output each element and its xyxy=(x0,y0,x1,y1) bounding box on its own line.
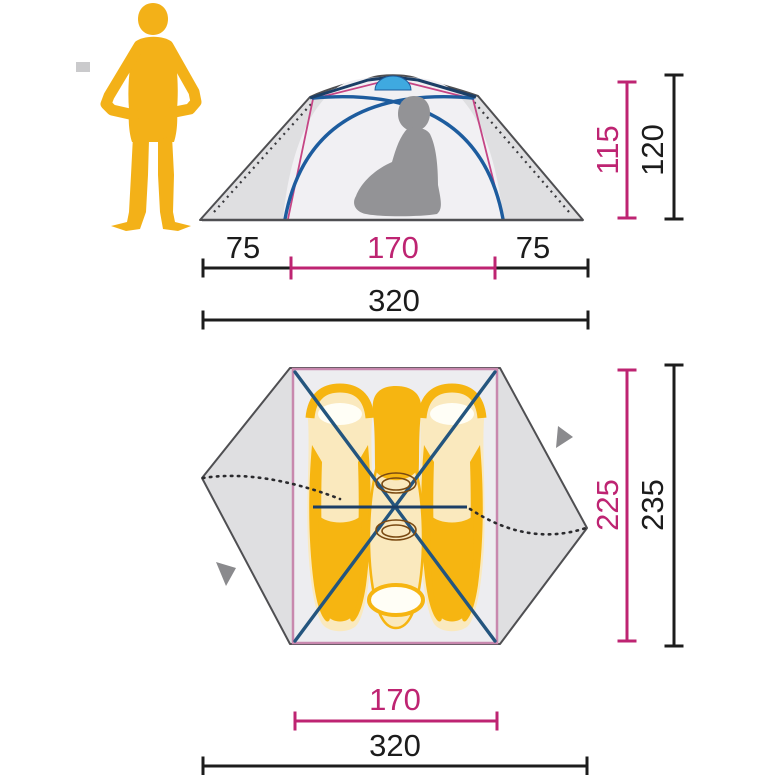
bag-foot xyxy=(318,515,362,622)
dim-right-width-label: 75 xyxy=(516,230,550,265)
tent-dimensions-diagram: 115 120 75 170 75 320 xyxy=(0,0,775,775)
kneeling-person-head xyxy=(398,96,430,131)
entrance-arrow-icon-bottom-left xyxy=(216,562,236,586)
dim-outer-depth-label: 235 xyxy=(635,479,670,531)
dim-left-width-label: 75 xyxy=(226,230,260,265)
tent-floor-plan xyxy=(202,368,587,644)
dim-inner-height-label: 115 xyxy=(590,125,625,174)
plan-depth-dimensions: 225 235 xyxy=(590,365,682,646)
bag-foot-pad xyxy=(369,585,423,615)
front-height-dimensions: 115 120 xyxy=(590,75,682,219)
dim-plan-total-width-label: 320 xyxy=(369,728,421,763)
scale-person-silhouette xyxy=(106,3,196,231)
dim-total-width-label: 320 xyxy=(368,283,420,318)
edge-artifact xyxy=(76,62,90,72)
sleeping-bag-right xyxy=(419,386,484,631)
dim-inner-width-label: 170 xyxy=(367,230,419,265)
dim-plan-inner-width-label: 170 xyxy=(369,682,421,717)
person-left-leg xyxy=(111,136,149,231)
person-right-leg xyxy=(158,136,191,231)
dim-inner-depth-label: 225 xyxy=(590,479,625,531)
diagram-svg: 115 120 75 170 75 320 xyxy=(0,0,775,775)
dim-outer-height-label: 120 xyxy=(635,124,670,176)
plan-width-dimensions: 170 320 xyxy=(203,682,587,774)
front-width-dimensions: 75 170 75 320 xyxy=(203,230,588,328)
entrance-arrow-icon-top-right xyxy=(556,426,573,448)
tent-front-view xyxy=(200,75,583,220)
sleeping-bag-left xyxy=(307,386,372,631)
person-head xyxy=(138,3,168,35)
